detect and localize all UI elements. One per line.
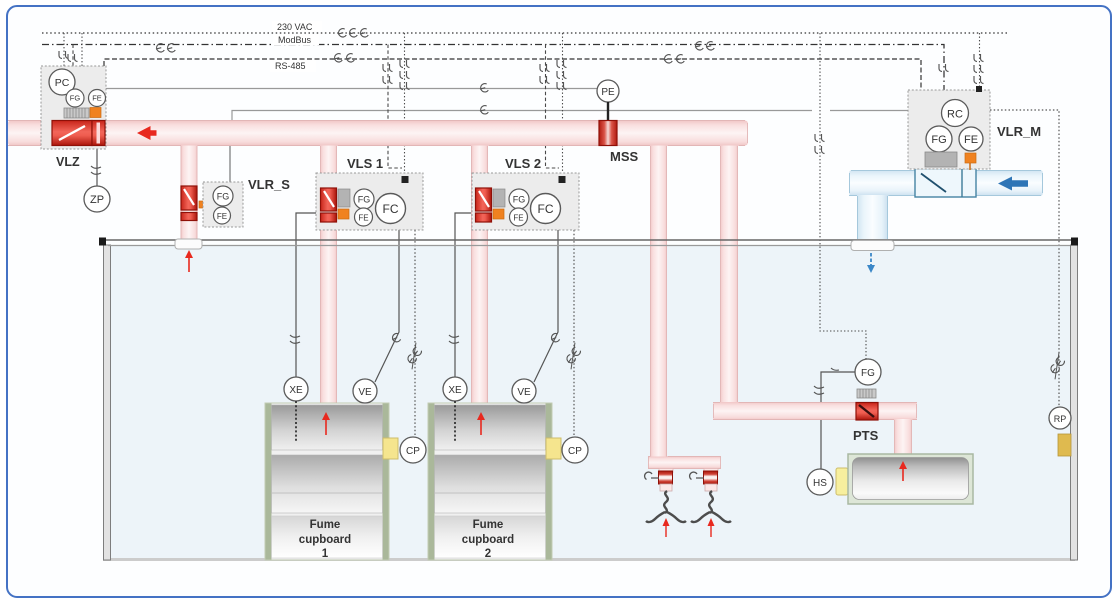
svg-text:VLR_S: VLR_S bbox=[248, 177, 290, 192]
svg-text:VLR_M: VLR_M bbox=[997, 124, 1041, 139]
svg-text:ModBus: ModBus bbox=[278, 35, 312, 45]
svg-text:PE: PE bbox=[601, 87, 615, 98]
svg-text:Fume: Fume bbox=[310, 519, 341, 531]
svg-text:ZP: ZP bbox=[90, 194, 104, 206]
svg-text:RC: RC bbox=[947, 109, 963, 121]
svg-text:2: 2 bbox=[485, 548, 491, 560]
svg-text:230 VAC: 230 VAC bbox=[277, 22, 313, 32]
svg-text:FG: FG bbox=[70, 94, 81, 103]
svg-text:RS-485: RS-485 bbox=[275, 61, 306, 71]
svg-text:VLZ: VLZ bbox=[56, 155, 80, 169]
svg-text:XE: XE bbox=[448, 385, 462, 396]
svg-text:FG: FG bbox=[931, 134, 946, 146]
svg-text:FE: FE bbox=[513, 214, 523, 223]
svg-text:Fume: Fume bbox=[473, 519, 504, 531]
svg-text:PC: PC bbox=[55, 77, 70, 89]
svg-text:FC: FC bbox=[538, 202, 554, 216]
svg-text:FG: FG bbox=[217, 192, 230, 202]
svg-text:FG: FG bbox=[861, 368, 875, 379]
svg-text:FE: FE bbox=[358, 214, 368, 223]
svg-text:CP: CP bbox=[568, 446, 582, 457]
svg-text:cupboard: cupboard bbox=[462, 534, 514, 546]
svg-text:FG: FG bbox=[358, 195, 371, 205]
svg-text:1: 1 bbox=[322, 548, 329, 560]
svg-text:HS: HS bbox=[813, 478, 827, 489]
svg-text:FE: FE bbox=[964, 134, 978, 146]
svg-text:cupboard: cupboard bbox=[299, 534, 351, 546]
svg-text:RP: RP bbox=[1054, 414, 1067, 424]
svg-text:PTS: PTS bbox=[853, 428, 879, 443]
svg-text:FG: FG bbox=[513, 195, 526, 205]
svg-text:VE: VE bbox=[358, 387, 372, 398]
svg-text:VLS 1: VLS 1 bbox=[347, 156, 383, 171]
svg-text:MSS: MSS bbox=[610, 149, 639, 164]
svg-text:FE: FE bbox=[92, 94, 102, 103]
svg-text:VLS 2: VLS 2 bbox=[505, 156, 541, 171]
svg-text:VE: VE bbox=[517, 387, 531, 398]
svg-text:XE: XE bbox=[289, 385, 303, 396]
svg-text:FE: FE bbox=[217, 212, 227, 221]
svg-text:FC: FC bbox=[383, 202, 399, 216]
svg-text:CP: CP bbox=[406, 446, 420, 457]
